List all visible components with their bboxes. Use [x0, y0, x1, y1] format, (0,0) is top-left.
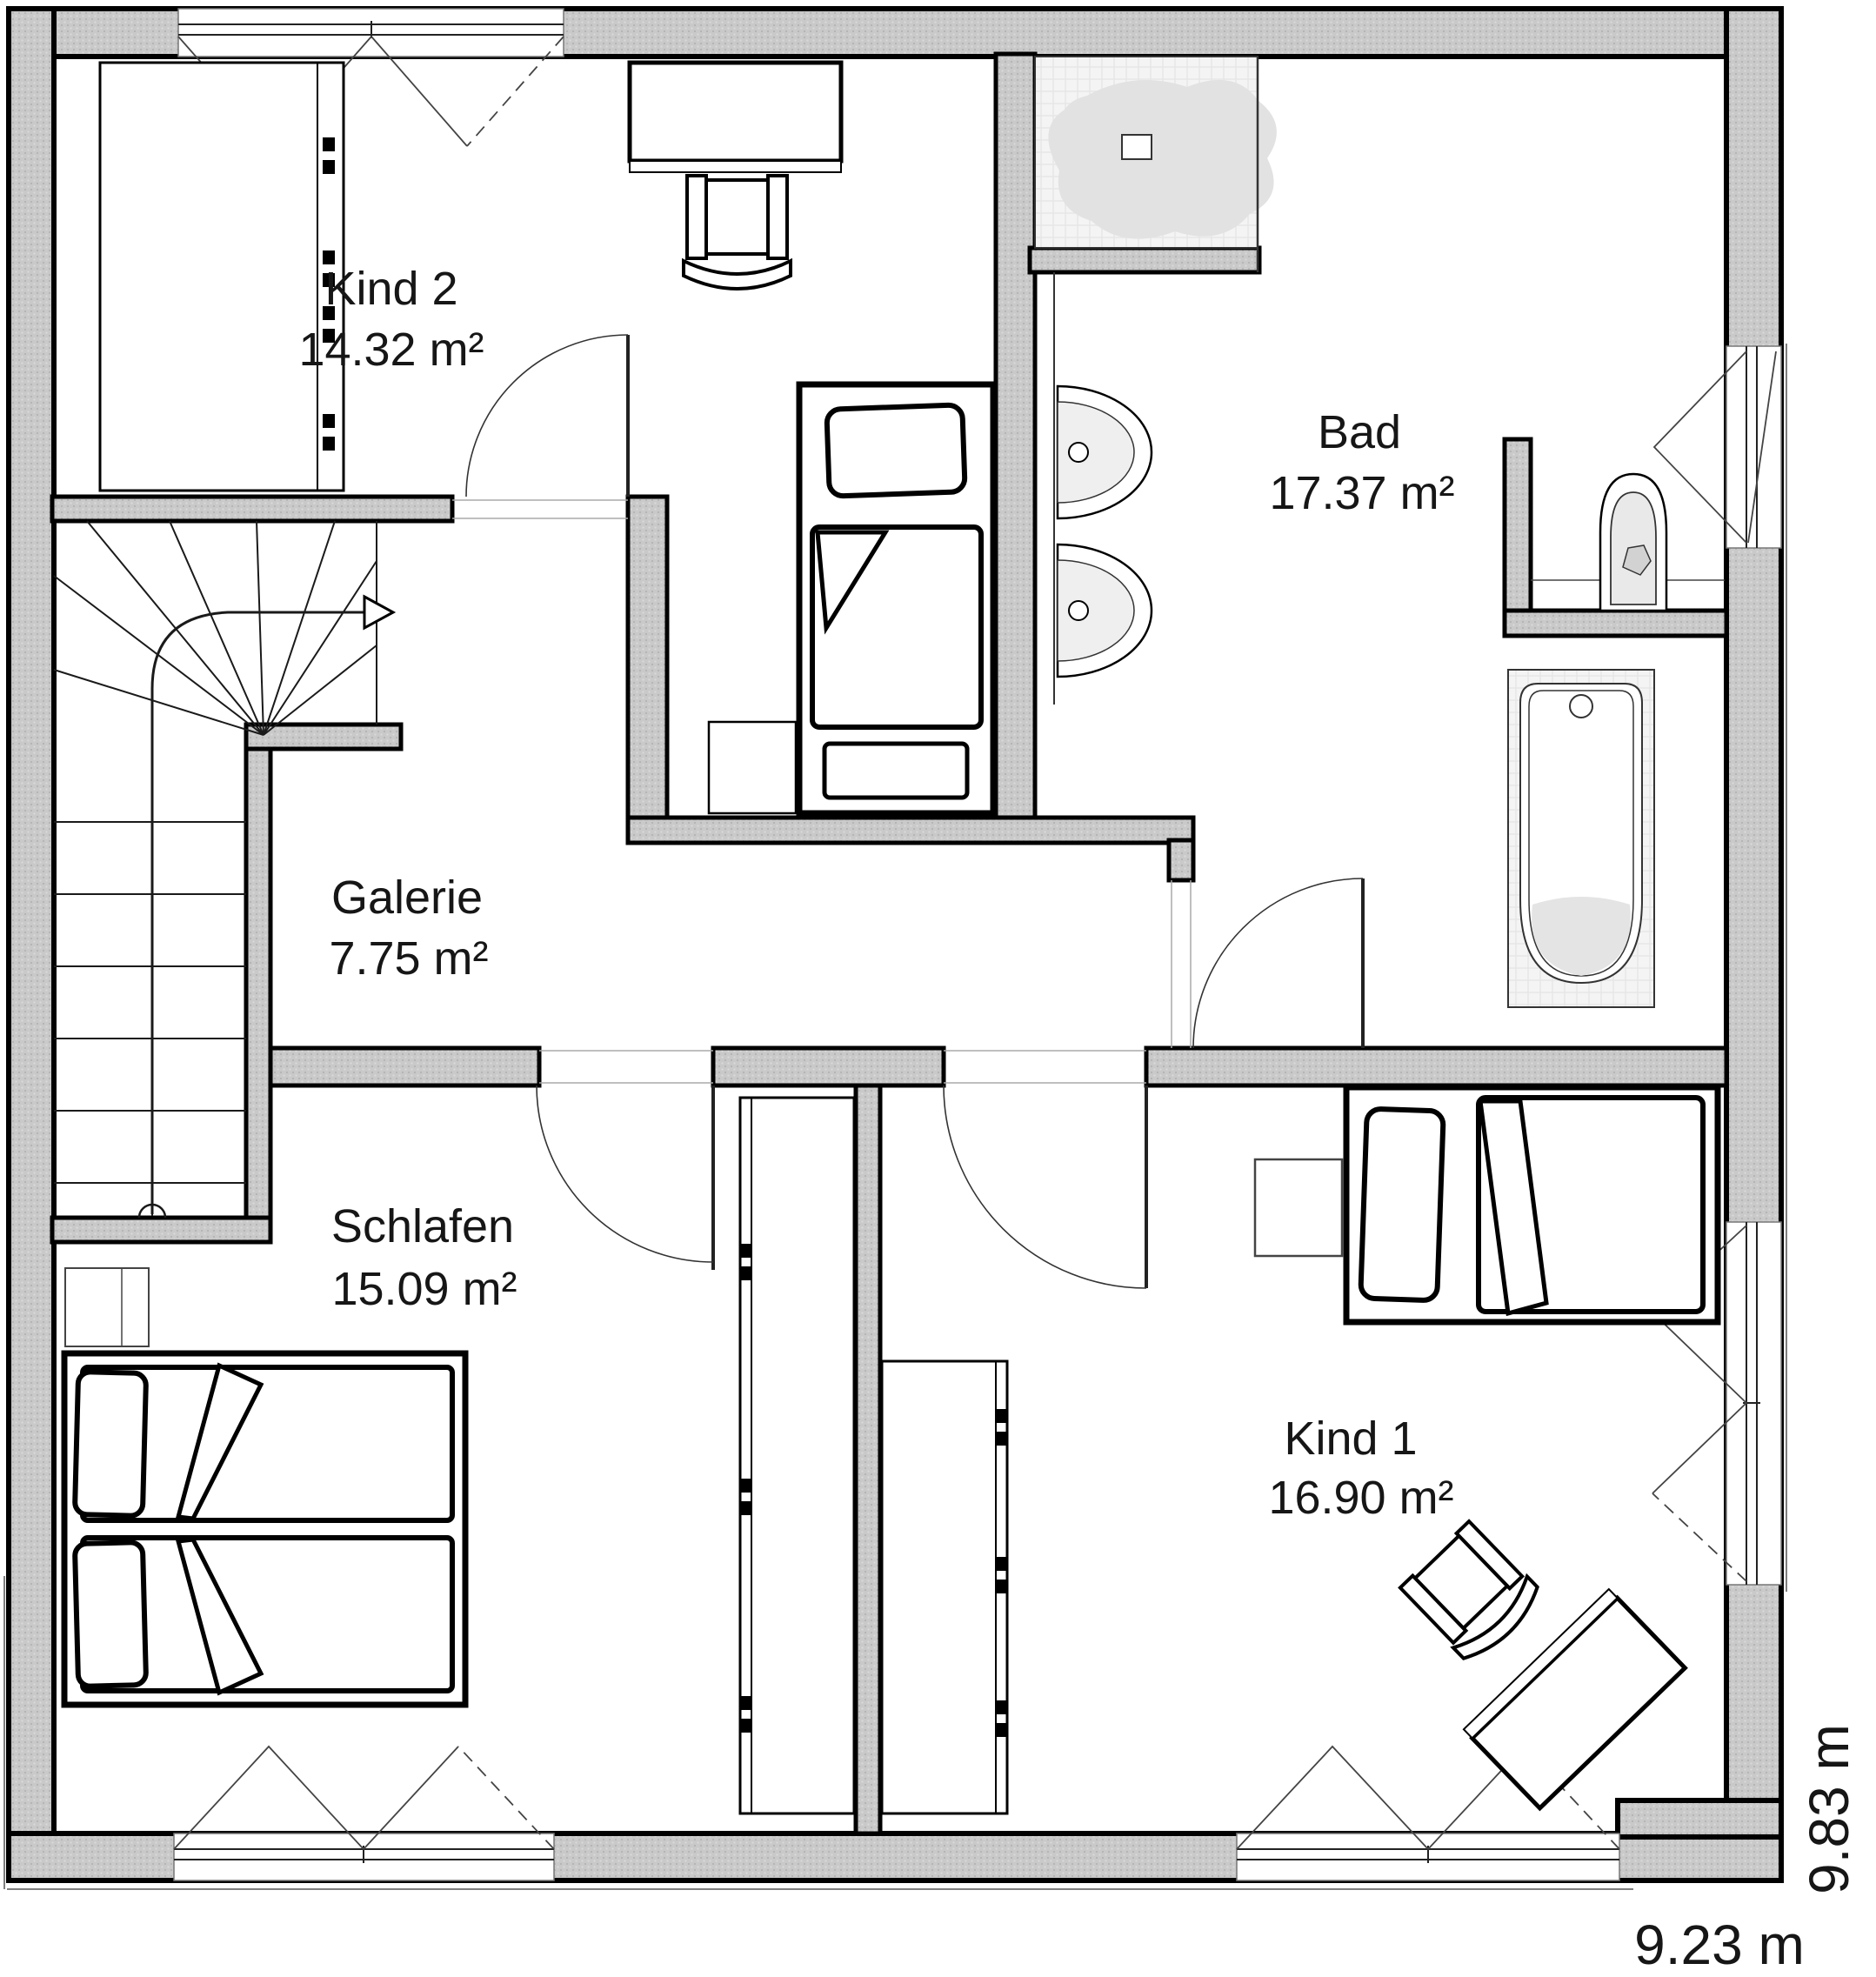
wall-shower-low [1030, 248, 1259, 272]
stair-tread [257, 521, 264, 735]
wall-bad-door-step [1169, 840, 1193, 880]
stair-tread [264, 521, 335, 735]
desk-kind2 [630, 63, 841, 172]
pillow-1 [75, 1372, 146, 1516]
bed-kind1 [1346, 1087, 1718, 1322]
stair-tread [54, 670, 264, 735]
closet-schlafen [65, 1268, 149, 1346]
stair-tread [264, 561, 377, 735]
room-area-kind2: 14.32 m² [298, 324, 484, 376]
chair-kind2 [684, 176, 791, 289]
wall-south-c [1146, 1048, 1726, 1085]
wall-corner-pier [1618, 1800, 1781, 1837]
window-schlafen-bottom [174, 1747, 554, 1880]
pillow-2 [75, 1542, 146, 1686]
pillow [826, 404, 965, 496]
stair-direction-arrow [364, 597, 393, 628]
stair-tread [170, 521, 264, 735]
floor-plan-page: Kind 2 14.32 m² Bad 17.37 m² Galerie 7.7… [0, 0, 1876, 1977]
wall-kind2-bad [996, 54, 1035, 843]
shower [1035, 57, 1277, 272]
wardrobe-schlafen [740, 1098, 854, 1813]
nightstand-kind2 [709, 722, 796, 813]
room-area-kind1: 16.90 m² [1268, 1472, 1453, 1524]
room-area-galerie: 7.75 m² [329, 932, 488, 985]
wall-left [9, 9, 54, 1880]
chair-kind1 [1398, 1519, 1546, 1667]
duvet-foot [825, 744, 967, 798]
wardrobe-kind2 [100, 63, 344, 491]
pillow [1360, 1109, 1444, 1301]
bad-fixtures [1035, 57, 1725, 1007]
wall-stair-inner-top [246, 725, 401, 749]
wall-south-b [713, 1048, 944, 1085]
sink-1 [1058, 386, 1152, 518]
wall-kind2-bottom [52, 497, 452, 521]
room-area-schlafen: 15.09 m² [331, 1263, 517, 1315]
bathtub [1508, 670, 1654, 1007]
wall-right [1726, 9, 1781, 1880]
bed-kind2 [799, 384, 993, 813]
room-label-galerie: Galerie [331, 872, 483, 924]
wall-divider-schlafen-kind1 [856, 1085, 880, 1833]
kind2-furniture [100, 63, 993, 813]
toilet [1531, 474, 1725, 611]
room-label-bad: Bad [1318, 406, 1401, 458]
room-label-kind1: Kind 1 [1284, 1413, 1417, 1465]
wall-nook-west [628, 497, 667, 820]
sink-2 [1058, 544, 1152, 677]
wall-wc-nook-south [1505, 611, 1726, 636]
dimension-width: 9.23 m [1634, 1914, 1805, 1976]
shower-drain [1122, 135, 1152, 159]
wardrobe-kind1 [882, 1361, 1007, 1813]
room-label-schlafen: Schlafen [331, 1200, 514, 1252]
wall-stair-south [52, 1218, 270, 1242]
wall-wc-nook-west [1505, 439, 1531, 636]
nightstand-kind1 [1255, 1159, 1342, 1256]
floor-plan-drawing: Kind 2 14.32 m² Bad 17.37 m² Galerie 7.7… [0, 0, 1876, 1977]
dimension-height: 9.83 m [1798, 1724, 1860, 1894]
room-area-bad: 17.37 m² [1269, 467, 1454, 519]
staircase [54, 521, 393, 1218]
door-schlafen [537, 1051, 713, 1270]
bath-drain [1570, 695, 1592, 718]
wall-stair-east [246, 749, 270, 1218]
double-bed [64, 1353, 465, 1705]
room-label-kind2: Kind 2 [324, 263, 457, 315]
window-bad-right [1654, 346, 1781, 548]
shower-mat [1048, 80, 1277, 239]
door-bad [1172, 878, 1363, 1048]
door-kind1 [944, 1051, 1146, 1288]
wall-galerie-north [628, 818, 1193, 843]
stair-tread [264, 645, 377, 735]
wall-south-a [268, 1048, 539, 1085]
